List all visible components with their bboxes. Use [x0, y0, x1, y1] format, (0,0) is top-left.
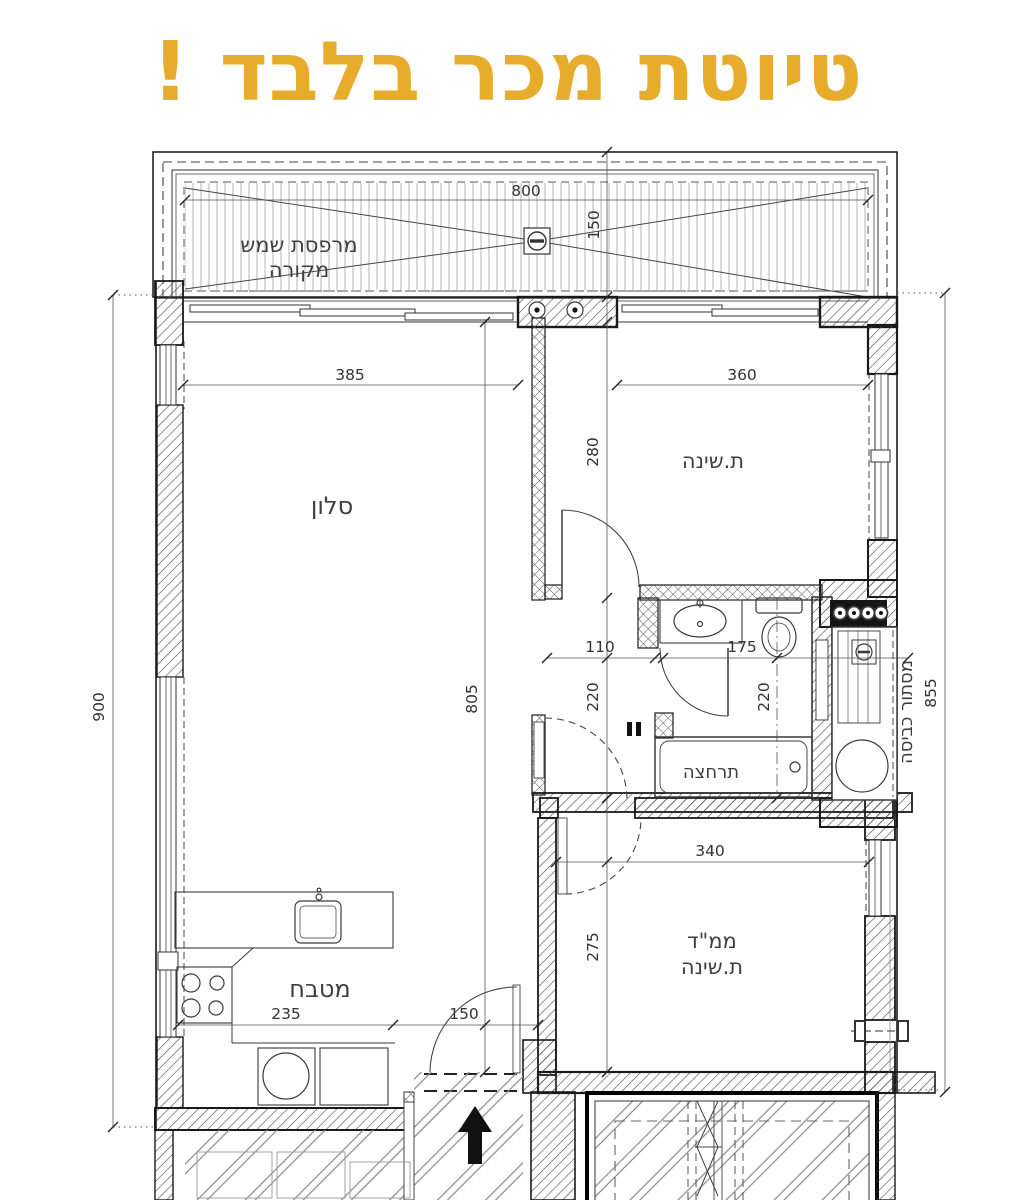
- floor-plan-drawing: מרפסת שמש מקורה: [0, 0, 1015, 1200]
- floor-plan-page: טיוטת מכר בלבד !: [0, 0, 1015, 1200]
- dim-hall-width: 110: [585, 638, 615, 656]
- dim-bedroom-width: 360: [727, 366, 757, 384]
- roof-drain-icon: [524, 228, 550, 254]
- kitchen-sink: [295, 901, 341, 943]
- balcony-label-line1: מרפסת שמש: [240, 233, 357, 257]
- safe-room-label-line2: ת.שינה: [681, 955, 743, 979]
- dim-safe-room-depth: 275: [584, 932, 602, 962]
- living-room-label: סלון: [311, 492, 353, 520]
- dim-right-total: 855: [922, 678, 940, 708]
- walls-layer: [155, 281, 935, 1200]
- elevator-shaft: [587, 1093, 877, 1200]
- balcony-label-line2: מקורה: [269, 258, 329, 282]
- dim-entry-width: 150: [449, 1005, 479, 1023]
- dim-hall-depth: 220: [584, 682, 602, 712]
- dim-left-total: 900: [90, 692, 108, 722]
- kitchen-label: מטבח: [289, 975, 350, 1003]
- balcony-area: מרפסת שמש מקורה: [153, 152, 897, 297]
- laundry-label: מסתור כביסה: [896, 660, 917, 764]
- stove-icon: [177, 967, 232, 1023]
- blast-valve-icon: [851, 1021, 909, 1041]
- dim-bath-depth: 220: [755, 682, 773, 712]
- bathroom-label: תרחצה: [683, 762, 739, 783]
- safe-room-label-line1: ממ"ד: [687, 929, 737, 953]
- laundry-shaft: [830, 600, 897, 800]
- dim-living-width: 385: [335, 366, 365, 384]
- kitchen-appliances: [258, 1048, 388, 1105]
- dim-bath-width: 175: [727, 638, 757, 656]
- dim-balcony-width: 800: [511, 182, 541, 200]
- bathroom-sink: [660, 598, 742, 643]
- dim-balcony-depth: 150: [585, 210, 603, 240]
- dim-living-kitchen-length: 805: [463, 684, 481, 714]
- bedroom-label: ת.שינה: [682, 449, 744, 473]
- toilet-icon: [756, 598, 802, 657]
- dim-safe-room-width: 340: [695, 842, 725, 860]
- dim-bedroom-depth: 280: [584, 437, 602, 467]
- dim-kitchen-width: 235: [271, 1005, 301, 1023]
